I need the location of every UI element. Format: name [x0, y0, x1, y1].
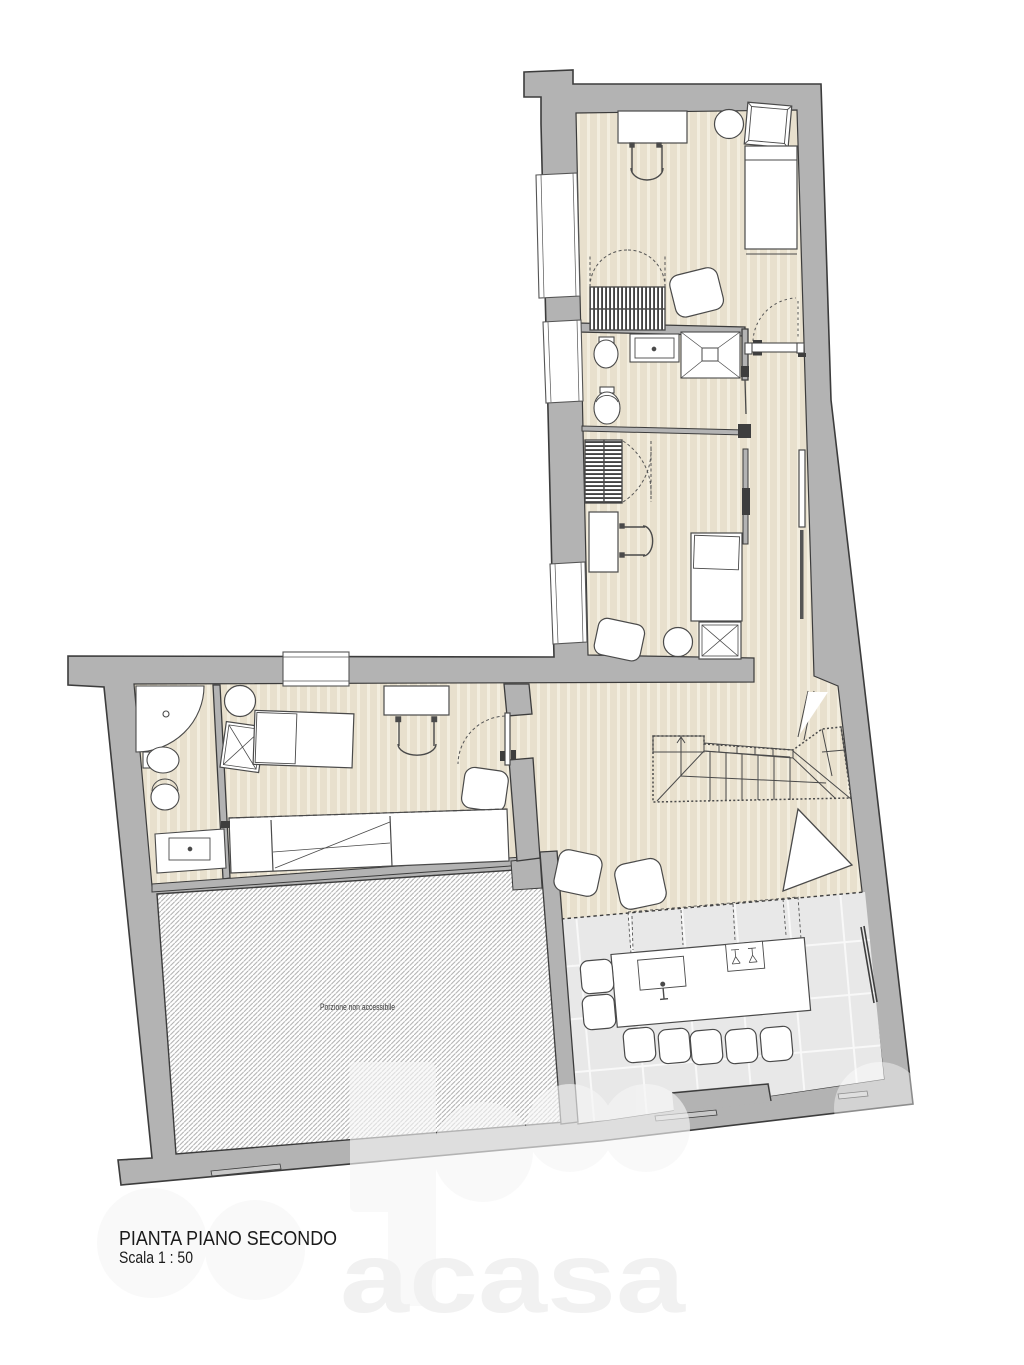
svg-text:acasa: acasa — [340, 1222, 687, 1334]
svg-text:PIANTA PIANO SECONDO: PIANTA PIANO SECONDO — [119, 1228, 337, 1250]
svg-text:Scala 1 : 50: Scala 1 : 50 — [119, 1249, 193, 1267]
svg-text:Porzione non accessibile: Porzione non accessibile — [320, 1002, 395, 1012]
